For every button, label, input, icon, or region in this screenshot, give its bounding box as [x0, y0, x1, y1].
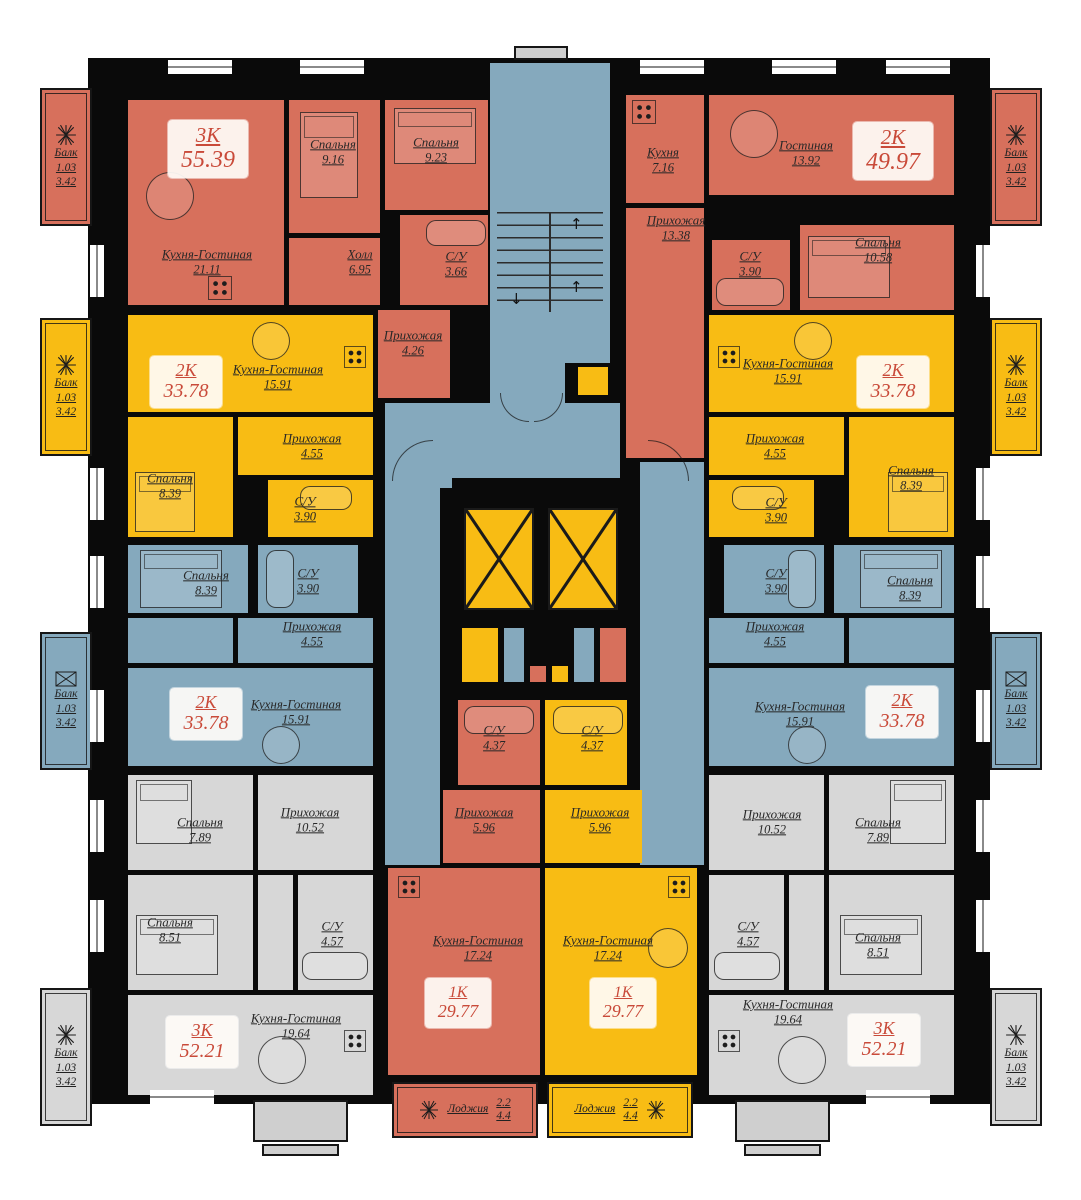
apartment-badge[interactable]: 1К29.77: [590, 978, 656, 1028]
bathtub-symbol: [788, 550, 816, 608]
window: [90, 556, 104, 608]
shaft: [504, 628, 524, 682]
room-label: Прихожая4.55: [283, 619, 341, 648]
stair-flight-down: [497, 212, 549, 312]
balcony-railing: Балк 1.03 3.42: [995, 637, 1037, 765]
balcony[interactable]: Балк 1.03 3.42: [40, 632, 92, 770]
room-label: С/У4.57: [321, 919, 343, 948]
balcony-area: 3.42: [1006, 1076, 1026, 1090]
loggia[interactable]: Лоджия 2.24.4: [547, 1082, 693, 1138]
table-symbol: [730, 110, 778, 158]
balcony-label: Балк: [55, 688, 78, 702]
balcony[interactable]: Балк 1.03 3.42: [990, 318, 1042, 456]
room-label: Кухня-Гостиная15.91: [233, 362, 323, 391]
shaft: [578, 367, 608, 395]
table-symbol: [788, 726, 826, 764]
room-label: Кухня-Гостиная21.11: [162, 247, 252, 276]
shaft: [530, 666, 546, 682]
window: [90, 690, 104, 742]
bathtub-symbol: [426, 220, 486, 246]
apartment-badge[interactable]: 2К33.78: [170, 688, 242, 740]
balcony[interactable]: Балк 1.03 3.42: [40, 988, 92, 1126]
ac-unit-icon: [55, 1024, 77, 1046]
window: [90, 800, 104, 852]
window: [90, 468, 104, 520]
bathtub-symbol: [266, 550, 294, 608]
room-label: Спальня8.39: [887, 573, 933, 602]
balcony-label: Балк: [1005, 377, 1028, 391]
window: [976, 556, 990, 608]
balcony-label: Балк: [55, 377, 78, 391]
elevator-x-icon: [466, 510, 532, 608]
window: [90, 245, 104, 297]
apartment-badge[interactable]: 3К52.21: [166, 1016, 238, 1068]
room-label: Прихожая4.55: [746, 431, 804, 460]
balcony-railing: Балк 1.03 3.42: [45, 93, 87, 221]
room-fill[interactable]: [128, 618, 233, 663]
bathtub-symbol: [714, 952, 780, 980]
loggia-label: Лоджия: [447, 1103, 488, 1117]
room-label: С/У4.37: [483, 723, 505, 752]
room-label: Холл6.95: [347, 247, 372, 276]
room-closet[interactable]: [789, 875, 824, 990]
room-label: Кухня-Гостиная15.91: [743, 356, 833, 385]
table-symbol: [262, 726, 300, 764]
loggia-label: Лоджия: [574, 1103, 615, 1117]
room-label: Прихожая10.52: [281, 805, 339, 834]
stove-symbol: [718, 1030, 740, 1052]
table-symbol: [648, 928, 688, 968]
entrance-step: [744, 1144, 821, 1156]
room-label: Прихожая5.96: [571, 805, 629, 834]
room-label: Кухня7.16: [647, 145, 679, 174]
room-label: Спальня7.89: [855, 815, 901, 844]
window: [640, 60, 704, 74]
entrance-porch: [253, 1100, 348, 1142]
room-label: Спальня8.51: [855, 930, 901, 959]
stove-symbol: [208, 276, 232, 300]
room-label: С/У3.90: [297, 566, 319, 595]
ac-unit-icon: [55, 354, 77, 376]
room-label: Спальня8.39: [147, 471, 193, 500]
window: [168, 60, 232, 74]
balcony-label: Балк: [1005, 1047, 1028, 1061]
bathtub-symbol: [302, 952, 368, 980]
apartment-badge[interactable]: 1К29.77: [425, 978, 491, 1028]
room-label: Кухня-Гостиная19.64: [251, 1011, 341, 1040]
balcony-area: 1.03: [56, 392, 76, 406]
ac-unit-icon: [1005, 124, 1027, 146]
balcony-railing: Балк 1.03 3.42: [995, 93, 1037, 221]
stove-symbol: [398, 876, 420, 898]
apartment-badge[interactable]: 2К33.78: [866, 686, 938, 738]
ac-unit-icon: [1005, 354, 1027, 376]
top-stoop: [514, 46, 568, 60]
window: [976, 468, 990, 520]
shaft: [600, 628, 626, 682]
room-label: С/У3.90: [765, 495, 787, 524]
entrance-porch: [735, 1100, 830, 1142]
balcony-area: 3.42: [1006, 717, 1026, 731]
loggia-railing: Лоджия 2.24.4: [552, 1087, 688, 1133]
window: [976, 900, 990, 952]
loggia-railing: Лоджия 2.24.4: [397, 1087, 533, 1133]
balcony-area: 1.03: [56, 703, 76, 717]
room-label: Кухня-Гостиная17.24: [433, 933, 523, 962]
room-label: С/У4.57: [737, 919, 759, 948]
shaft: [552, 666, 568, 682]
balcony-railing: Балк 1.03 3.42: [45, 637, 87, 765]
balcony-area: 3.42: [1006, 406, 1026, 420]
room-label: Прихожая4.55: [746, 619, 804, 648]
balcony-area: 1.03: [1006, 703, 1026, 717]
room-label: Прихожая4.55: [283, 431, 341, 460]
balcony-label: Балк: [55, 1047, 78, 1061]
balcony-area: 3.42: [56, 176, 76, 190]
apartment-badge[interactable]: 2К49.97: [853, 122, 933, 180]
shaft: [462, 628, 498, 682]
apartment-badge[interactable]: 2К33.78: [857, 356, 929, 408]
balcony[interactable]: Балк 1.03 3.42: [40, 88, 92, 226]
balcony-label: Балк: [55, 147, 78, 161]
room-label: Гостиная13.92: [779, 138, 833, 167]
balcony-railing: Балк 1.03 3.42: [995, 993, 1037, 1121]
room-label: Прихожая13.38: [647, 213, 705, 242]
balcony-label: Балк: [1005, 147, 1028, 161]
loggia-areas: 2.24.4: [623, 1097, 637, 1123]
table-symbol: [794, 322, 832, 360]
stair-arrow-up: ↑: [570, 215, 583, 233]
table-symbol: [252, 322, 290, 360]
balcony-railing: Балк 1.03 3.42: [45, 323, 87, 451]
elevator-1: [464, 508, 534, 610]
balcony-area: 3.42: [56, 1076, 76, 1090]
stove-symbol: [344, 1030, 366, 1052]
loggia-areas: 2.24.4: [496, 1097, 510, 1123]
apartment-badge[interactable]: 3К55.39: [168, 120, 248, 178]
room-label: Кухня-Гостиная15.91: [251, 697, 341, 726]
room-label: Спальня10.58: [855, 235, 901, 264]
window: [866, 1090, 930, 1104]
window: [976, 690, 990, 742]
room-closet[interactable]: [258, 875, 293, 990]
ac-unit-icon: [1005, 1024, 1027, 1046]
balcony-area: 1.03: [1006, 162, 1026, 176]
table-symbol: [778, 1036, 826, 1084]
room-label: С/У3.90: [739, 249, 761, 278]
room-label: Спальня7.89: [177, 815, 223, 844]
room-hallway[interactable]: [626, 208, 704, 458]
balcony-area: 1.03: [1006, 392, 1026, 406]
stair-arrow-up2: ↑: [570, 278, 583, 296]
window: [150, 1090, 214, 1104]
balcony-area: 3.42: [56, 406, 76, 420]
shaft: [574, 628, 594, 682]
balcony-area: 3.42: [1006, 176, 1026, 190]
room-kitchen-living[interactable]: [545, 868, 697, 1075]
window: [300, 60, 364, 74]
room-label: С/У3.90: [294, 494, 316, 523]
room-fill[interactable]: [849, 618, 954, 663]
room-label: С/У3.66: [445, 249, 467, 278]
room-label: Спальня8.39: [183, 568, 229, 597]
balcony[interactable]: Балк 1.03 3.42: [990, 988, 1042, 1126]
room-label: Прихожая4.26: [384, 328, 442, 357]
stove-symbol: [718, 346, 740, 368]
balcony-label: Балк: [1005, 688, 1028, 702]
room-label: Кухня-Гостиная15.91: [755, 699, 845, 728]
wardrobe-x-icon: [55, 671, 77, 687]
window: [90, 900, 104, 952]
apartment-badge[interactable]: 3К52.21: [848, 1014, 920, 1066]
elevator-x-icon: [550, 510, 616, 608]
balcony[interactable]: Балк 1.03 3.42: [40, 318, 92, 456]
corridor-right-leg: [640, 462, 704, 865]
window: [976, 245, 990, 297]
balcony-area: 1.03: [1006, 1062, 1026, 1076]
stove-symbol: [344, 346, 366, 368]
stove-symbol: [632, 100, 656, 124]
apartment-badge[interactable]: 2К33.78: [150, 356, 222, 408]
balcony-railing: Балк 1.03 3.42: [995, 323, 1037, 451]
room-label: Кухня-Гостиная19.64: [743, 997, 833, 1026]
corridor-left-leg: [385, 488, 440, 865]
stove-symbol: [668, 876, 690, 898]
loggia[interactable]: Лоджия 2.24.4: [392, 1082, 538, 1138]
balcony-area: 3.42: [56, 717, 76, 731]
window: [976, 800, 990, 852]
room-label: С/У4.37: [581, 723, 603, 752]
room-label: Прихожая10.52: [743, 807, 801, 836]
balcony[interactable]: Балк 1.03 3.42: [990, 88, 1042, 226]
balcony-area: 1.03: [56, 162, 76, 176]
window: [772, 60, 836, 74]
room-label: Спальня9.16: [310, 137, 356, 166]
room-label: Прихожая5.96: [455, 805, 513, 834]
window: [886, 60, 950, 74]
room-label: Спальня9.23: [413, 135, 459, 164]
stair-arrow-down: ↓: [510, 290, 523, 308]
room-label: Кухня-Гостиная17.24: [563, 933, 653, 962]
room-label: С/У3.90: [765, 566, 787, 595]
balcony-area: 1.03: [56, 1062, 76, 1076]
balcony[interactable]: Балк 1.03 3.42: [990, 632, 1042, 770]
wardrobe-x-icon: [1005, 671, 1027, 687]
entrance-step: [262, 1144, 339, 1156]
bathtub-symbol: [716, 278, 784, 306]
balcony-railing: Балк 1.03 3.42: [45, 993, 87, 1121]
room-label: Спальня8.51: [147, 915, 193, 944]
table-symbol: [258, 1036, 306, 1084]
ac-unit-icon: [55, 124, 77, 146]
elevator-2: [548, 508, 618, 610]
ac-unit-icon: [646, 1100, 666, 1120]
floor-plan: ↓ ↑ ↑ Кухня-Гостиная21.11 Спальня9.16 Сп…: [0, 0, 1081, 1200]
table-symbol: [146, 172, 194, 220]
room-label: Спальня8.39: [888, 463, 934, 492]
room-kitchen-living[interactable]: [388, 868, 540, 1075]
ac-unit-icon: [419, 1100, 439, 1120]
